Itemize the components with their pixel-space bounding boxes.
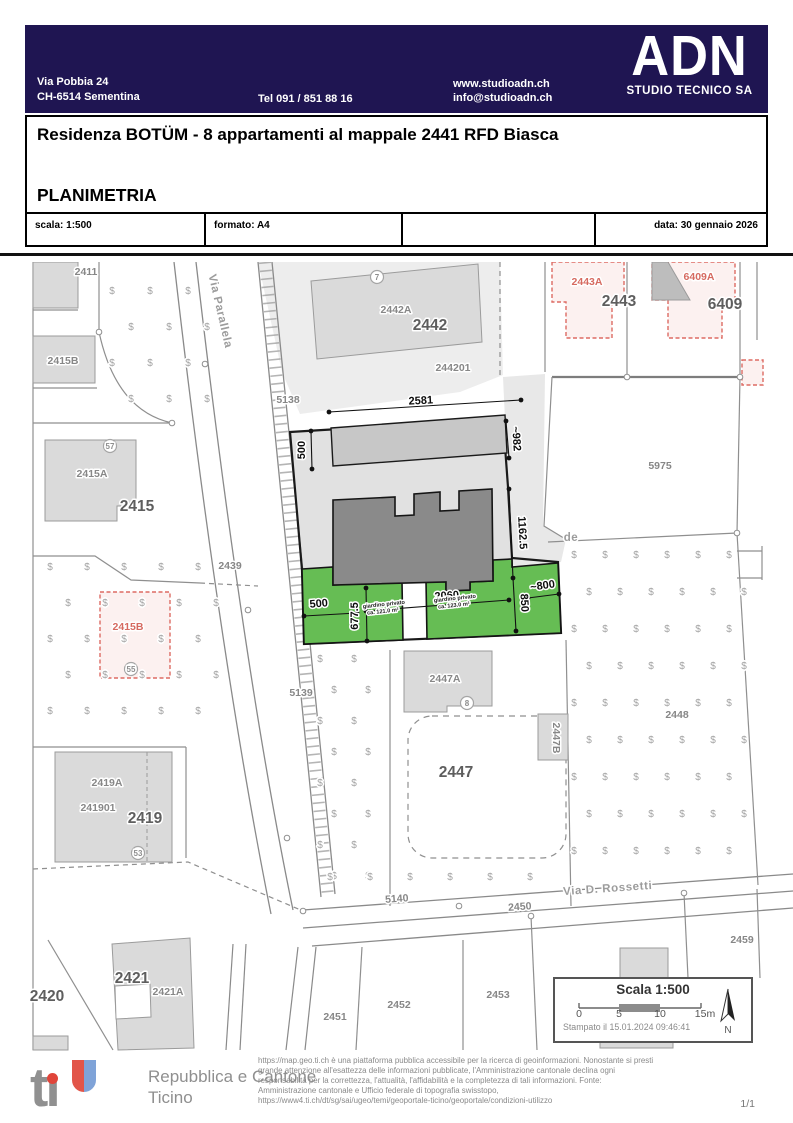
map-label: 7 [375,273,380,282]
map-label: $ [741,587,747,598]
map-label: $ [407,872,413,883]
map-label: $ [331,809,337,820]
map-label: 5975 [648,460,672,472]
map-label: $ [158,634,164,645]
address-line1: Via Pobbia 24 [37,75,140,90]
meta-scala: scala: 1:500 [27,214,204,245]
map-label: 5138 [276,394,300,406]
map-label: $ [109,358,115,369]
map-label: $ [695,846,701,857]
map-label: $ [602,624,608,635]
map-label: 2443A [572,276,603,288]
tick-5: 5 [616,1008,622,1020]
map-label: $ [109,286,115,297]
meta-formato: formato: A4 [204,214,401,245]
map-label: $ [47,634,53,645]
map-label: $ [331,685,337,696]
meta-data: data: 30 gennaio 2026 [594,214,766,245]
map-label: $ [695,772,701,783]
map-label: 2415B [48,355,79,367]
studio-website: www.studioadn.ch [453,77,552,91]
map-label: $ [602,550,608,561]
map-label: $ [648,587,654,598]
studio-phone: Tel 091 / 851 88 16 [258,93,353,105]
map-label: 2450 [508,900,532,914]
map-label: $ [664,624,670,635]
disclaimer-line: grande attenzione all'esattezza delle in… [258,1066,723,1076]
map-label: $ [166,394,172,405]
map-label: $ [633,772,639,783]
map-label: $ [586,661,592,672]
map-label: $ [726,550,732,561]
map-label: $ [679,661,685,672]
disclaimer-line: https://www4.ti.ch/dt/sg/sai/ugeo/temi/g… [258,1096,723,1106]
map-label: $ [365,747,371,758]
map-label: $ [84,562,90,573]
map-label: $ [726,772,732,783]
separator-line [0,253,793,256]
map-label: 2442 [413,317,447,334]
map-label: 2415B [113,621,144,633]
map-label: $ [726,698,732,709]
map-label: $ [195,562,201,573]
map-label: $ [617,735,623,746]
map-label: 55 [127,665,136,674]
map-label: Via D. Rossetti [563,880,653,898]
map-label: $ [365,685,371,696]
drawing-title: PLANIMETRIA [37,185,157,206]
meta-empty [401,214,594,245]
map-label: $ [633,550,639,561]
map-label: 500 [296,441,308,459]
tick-0: 0 [576,1008,582,1020]
map-label: $ [571,846,577,857]
map-label: $ [710,735,716,746]
map-label: $ [664,846,670,857]
map-label: 2447B [550,723,562,754]
page-number: 1/1 [740,1098,755,1110]
map-label: $ [351,778,357,789]
map-label: $ [664,698,670,709]
map-label: $ [84,634,90,645]
map-label: 850 [518,593,531,612]
map-label: 6409 [708,296,743,313]
map-label: 2421A [153,986,184,998]
map-label: 5139 [289,687,313,699]
map-label: $ [166,322,172,333]
map-label: $ [102,670,108,681]
map-label: $ [47,706,53,717]
map-label: $ [617,809,623,820]
studio-contacts: www.studioadn.ch info@studioadn.ch [453,77,552,105]
map-label: $ [128,394,134,405]
map-label: $ [317,716,323,727]
map-label: $ [158,706,164,717]
meta-row: scala: 1:500 formato: A4 data: 30 gennai… [27,212,766,245]
map-label: $ [121,562,127,573]
map-label: 2452 [387,999,411,1011]
plan-sheet: Via Pobbia 24 CH-6514 Sementina Tel 091 … [0,0,793,1123]
map-label: 2447 [439,764,473,781]
map-label: $ [695,624,701,635]
map-label: 2443 [602,293,637,310]
map-label: $ [331,747,337,758]
site-plan-map: $$$$$$$$$$$$$$$$$$$$$$$$$$$$$$$$$$$$$$$$… [0,262,793,1052]
map-label: 2451 [323,1011,347,1023]
ticino-logo: tı [30,1060,96,1110]
map-label: $ [139,598,145,609]
map-label: de [564,532,579,544]
map-label: 2421 [115,970,150,987]
map-label: $ [527,872,533,883]
map-label: $ [571,772,577,783]
map-label: 2411 [75,266,98,278]
map-label: $ [602,772,608,783]
map-label: $ [741,735,747,746]
title-block: Residenza BOTÜM - 8 appartamenti al mapp… [25,115,768,247]
map-label: 2448 [665,709,689,721]
map-label: $ [317,840,323,851]
map-label: 2439 [218,560,242,572]
map-label: $ [176,598,182,609]
map-label: 677.5 [349,602,361,630]
map-label: $ [617,661,623,672]
map-label: 2459 [730,934,754,946]
map-label: Via Parallela [206,273,235,349]
map-label: $ [195,634,201,645]
map-label: $ [710,587,716,598]
disclaimer-line: responsabilità per la correttezza, l'att… [258,1076,723,1086]
map-label: $ [710,809,716,820]
letterhead: Via Pobbia 24 CH-6514 Sementina Tel 091 … [25,25,768,113]
map-label: $ [121,706,127,717]
tick-15m: 15m [695,1008,715,1020]
map-label: 2447A [430,673,461,685]
map-label: 241901 [80,802,115,814]
map-label: $ [571,698,577,709]
map-label: $ [147,286,153,297]
map-label: $ [664,550,670,561]
map-label: $ [351,840,357,851]
map-label: $ [571,624,577,635]
map-label: $ [176,670,182,681]
map-label: $ [571,550,577,561]
map-label: 2442A [381,304,412,316]
map-label: $ [47,562,53,573]
map-label: 1162.5 [515,516,529,550]
map-label: $ [65,598,71,609]
map-label: $ [586,809,592,820]
north-arrow-icon: N [715,987,741,1036]
map-label: 53 [134,849,143,858]
map-label: $ [617,587,623,598]
ticino-shield-icon [72,1060,96,1092]
scale-box: Scala 1:500 0 5 10 15m Stampato il 15.01… [553,977,753,1043]
print-timestamp: Stampato il 15.01.2024 09:46:41 [563,1022,690,1032]
map-label: $ [679,735,685,746]
tick-10: 10 [654,1008,666,1020]
map-label: $ [726,846,732,857]
footer: tı Repubblica e Cantone Ticino https://m… [0,1056,793,1116]
map-label: $ [710,661,716,672]
map-label: 2420 [30,988,64,1005]
map-label: 2419A [92,777,123,789]
map-label: $ [204,322,210,333]
map-label: $ [121,634,127,645]
map-label: $ [185,286,191,297]
adn-logo-text: ADN [623,25,756,87]
map-label: $ [367,872,373,883]
map-label: $ [317,778,323,789]
map-label: $ [648,809,654,820]
disclaimer-line: Amministrazione cantonale e Ufficio fede… [258,1086,723,1096]
map-label: $ [213,598,219,609]
map-label: $ [695,550,701,561]
map-label: $ [633,698,639,709]
map-label: 2453 [486,989,510,1001]
map-label: $ [204,394,210,405]
map-label: 2415A [77,468,108,480]
ticino-logo-text: tı [30,1064,58,1110]
map-label: $ [351,654,357,665]
map-label: $ [633,624,639,635]
map-label: 8 [465,699,470,708]
map-label: $ [139,670,145,681]
studio-address: Via Pobbia 24 CH-6514 Sementina [37,75,140,105]
map-label: $ [679,587,685,598]
map-label: $ [147,358,153,369]
map-label: $ [84,706,90,717]
map-label: $ [128,322,134,333]
map-label: $ [695,698,701,709]
map-label: $ [102,598,108,609]
map-label: 5140 [385,892,409,906]
map-label: $ [487,872,493,883]
map-label: 6409A [684,271,715,283]
map-label: 57 [106,442,115,451]
map-label: $ [679,809,685,820]
map-label: $ [447,872,453,883]
map-label: $ [741,661,747,672]
map-label: $ [317,654,323,665]
map-label: $ [365,809,371,820]
map-label: $ [633,846,639,857]
north-label: N [715,1025,741,1036]
map-label: 244201 [435,362,470,374]
map-label: $ [185,358,191,369]
map-label: $ [602,698,608,709]
project-title: Residenza BOTÜM - 8 appartamenti al mapp… [37,125,559,145]
disclaimer-line: https://map.geo.ti.ch è una piattaforma … [258,1056,723,1066]
disclaimer-text: https://map.geo.ti.ch è una piattaforma … [258,1056,723,1106]
map-label: 500 [309,597,328,611]
map-label: $ [741,809,747,820]
map-label: $ [351,716,357,727]
studio-email: info@studioadn.ch [453,91,552,105]
map-label: $ [664,772,670,783]
map-label: $ [648,661,654,672]
map-label: $ [726,624,732,635]
map-label: ~982 [509,426,523,452]
address-line2: CH-6514 Sementina [37,90,140,105]
map-label: $ [586,735,592,746]
map-label: $ [602,846,608,857]
map-label: $ [586,587,592,598]
map-label: $ [195,706,201,717]
map-label: 2581 [408,394,433,407]
map-label: $ [327,872,333,883]
map-label: 2415 [120,498,155,515]
map-label: $ [158,562,164,573]
map-label: $ [648,735,654,746]
adn-logo: ADN STUDIO TECNICO SA [617,25,762,97]
map-label: 2419 [128,810,163,827]
map-label: $ [213,670,219,681]
map-label: $ [65,670,71,681]
